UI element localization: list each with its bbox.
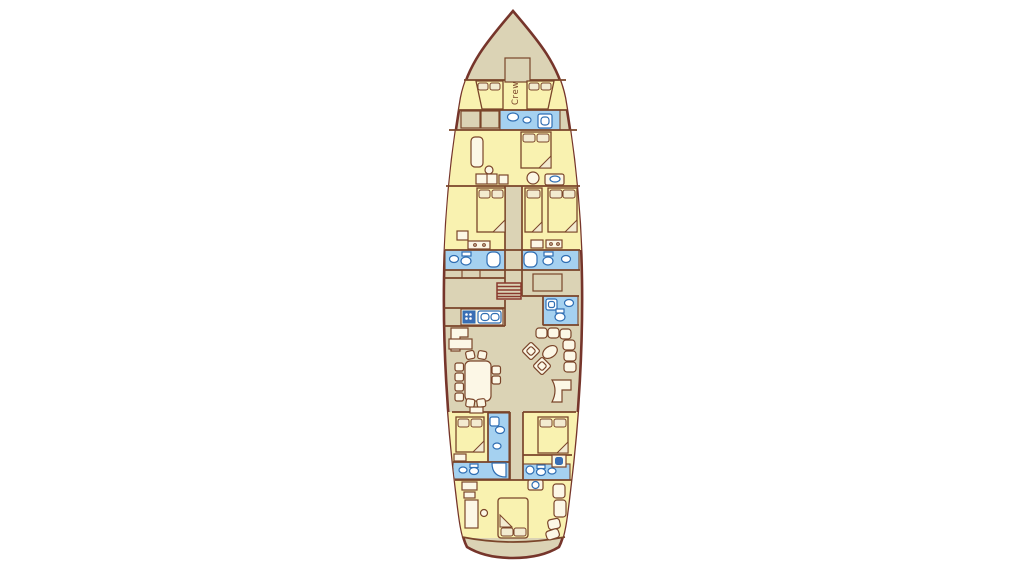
deck-plan-drawing: Crew — [0, 0, 1024, 576]
galley — [461, 309, 503, 325]
washing-machine — [552, 455, 566, 467]
sink-icon — [548, 468, 556, 474]
round-table — [527, 172, 539, 184]
stool — [485, 166, 493, 174]
toilet-icon — [470, 468, 479, 475]
toilet-icon — [555, 313, 565, 321]
dresser — [462, 482, 477, 490]
shower-icon — [524, 252, 537, 267]
nightstand — [531, 240, 543, 248]
toilet-icon — [537, 469, 546, 476]
nightstand — [457, 231, 468, 240]
bow-hatch — [505, 58, 530, 82]
nightstand — [454, 454, 466, 461]
shower-icon — [487, 252, 500, 267]
threshold-cabinet — [470, 407, 483, 413]
sink-icon — [565, 300, 574, 307]
side-table — [499, 175, 508, 184]
stove-icon — [463, 311, 475, 323]
basin-icon — [526, 466, 534, 474]
corridor-aft — [510, 412, 523, 480]
forward-cabinets — [461, 111, 499, 128]
sink-icon — [562, 256, 571, 263]
toilet-icon — [461, 257, 471, 265]
toilet-icon — [523, 117, 531, 123]
shower-icon — [490, 417, 499, 426]
sink-icon — [493, 443, 501, 449]
dresser — [468, 241, 490, 249]
toilet-icon — [496, 427, 505, 434]
stool — [481, 510, 488, 517]
vanity-basin-icon — [532, 482, 539, 489]
sink-icon — [459, 467, 467, 473]
corridor-forward — [505, 186, 522, 270]
toilet-icon — [543, 257, 553, 265]
master-lockers — [553, 484, 566, 517]
sink-icon — [508, 113, 519, 121]
chaise — [471, 137, 483, 167]
yacht-deck-plan-canvas: Crew — [0, 0, 1024, 576]
wardrobe — [465, 500, 478, 528]
dining-table — [465, 361, 491, 401]
sink-icon — [450, 256, 459, 263]
crew-cabin: Crew — [476, 81, 554, 109]
crew-cabin-label: Crew — [511, 81, 521, 105]
sideboard — [449, 339, 472, 349]
bow-deck — [505, 58, 530, 82]
companionway-stairs — [497, 283, 521, 299]
vanity-basin-icon — [550, 176, 560, 182]
